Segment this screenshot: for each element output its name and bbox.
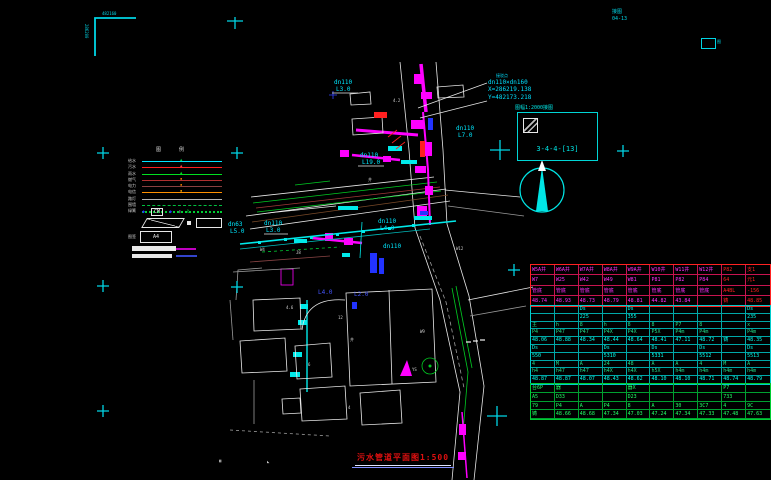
magenta-marker bbox=[400, 360, 412, 376]
table-cell: W49 bbox=[603, 275, 627, 285]
legend-item-label: 雨水 bbox=[128, 171, 136, 177]
table-cell: D23 bbox=[627, 393, 651, 402]
table-cell: Ds bbox=[627, 306, 651, 314]
table-cell bbox=[627, 345, 651, 353]
legend-symbol: ◆ bbox=[169, 209, 172, 215]
map-label: 12 bbox=[338, 316, 343, 320]
manhole-blob bbox=[459, 424, 466, 435]
sheet-index-box: 3-4-4-[13] bbox=[517, 112, 598, 161]
table-cell: P5X bbox=[650, 329, 674, 337]
table-cell: W7 bbox=[531, 275, 555, 285]
legend-item-marker: ▪ bbox=[180, 188, 182, 193]
table-cell: Ds bbox=[650, 345, 674, 353]
legend-item-label: 污水 bbox=[128, 164, 136, 170]
table-cell bbox=[722, 322, 746, 330]
table-cell: Ds bbox=[531, 345, 555, 353]
parallelogram-symbol bbox=[141, 218, 185, 228]
map-label: L7.0 bbox=[458, 133, 472, 139]
table-cell bbox=[698, 306, 722, 314]
hydrant bbox=[293, 352, 302, 357]
blue-block bbox=[428, 118, 433, 130]
table-cell bbox=[722, 314, 746, 322]
map-label: 4.2 bbox=[393, 99, 400, 103]
blue-block bbox=[420, 211, 428, 215]
table-cell: 79 bbox=[531, 402, 555, 411]
map-label: ▦ bbox=[219, 459, 221, 463]
table-cell: h bbox=[555, 322, 579, 330]
table-cell: 8 bbox=[579, 322, 603, 330]
table-cell: 器X bbox=[627, 384, 651, 393]
north-arrow-tip bbox=[538, 160, 546, 171]
table-cell: Ds bbox=[746, 306, 770, 314]
table-cell: Ds bbox=[698, 345, 722, 353]
table-cell bbox=[722, 306, 746, 314]
table-cell: h47 bbox=[555, 368, 579, 376]
table-cell bbox=[579, 353, 603, 361]
table-cell: 225 bbox=[579, 314, 603, 322]
table-cell: h4m bbox=[722, 368, 746, 376]
legend-symbol: ◆ bbox=[142, 209, 145, 215]
table-cell bbox=[603, 384, 627, 393]
manhole-blob bbox=[414, 74, 423, 84]
table-cell bbox=[603, 306, 627, 314]
table-cell: W12井 bbox=[698, 265, 722, 275]
frame-corner-bracket bbox=[95, 18, 136, 56]
building-divider bbox=[389, 290, 392, 384]
legend-item-marker: ▲ bbox=[180, 157, 182, 162]
sewer-pipe bbox=[421, 64, 426, 112]
table-cell bbox=[698, 384, 722, 393]
map-label: YS bbox=[412, 368, 417, 372]
table-cell: W5A井 bbox=[531, 265, 555, 275]
table-cell: 48.66 bbox=[555, 410, 579, 419]
table-cell: 5513 bbox=[746, 353, 770, 361]
table-section: 台6P器器XP7A5D33D2373379P4AP48A303C749C铸48.… bbox=[530, 383, 771, 420]
callout-pipe: dn110×dn160 bbox=[488, 80, 531, 86]
map-label: 4.6 bbox=[286, 306, 293, 310]
label-box bbox=[350, 92, 371, 105]
frame-coord-x: 482160 bbox=[102, 12, 116, 16]
table-cell: 47.34 bbox=[674, 410, 698, 419]
hedge-line bbox=[262, 247, 340, 252]
table-cell: A5 bbox=[531, 393, 555, 402]
table-cell: P7 bbox=[722, 384, 746, 393]
table-cell: M bbox=[555, 361, 579, 369]
table-cell: 48.41 bbox=[650, 337, 674, 345]
table-cell: 47.33 bbox=[698, 410, 722, 419]
parcel-line bbox=[448, 206, 524, 216]
table-cell: 8 bbox=[698, 322, 722, 330]
table-cell bbox=[674, 353, 698, 361]
manhole-blob bbox=[425, 186, 433, 195]
table-cell: 48.34 bbox=[579, 337, 603, 345]
valve bbox=[412, 224, 415, 227]
map-label: L19.0 bbox=[362, 160, 380, 166]
cad-drawing-canvas[interactable]: 482160 286200 接图 04-13 图 图例 给水▲污水▲雨水▲燃气▪… bbox=[0, 0, 771, 480]
table-cell: 47.24 bbox=[650, 410, 674, 419]
table-cell: A bbox=[674, 361, 698, 369]
blue-block bbox=[370, 253, 377, 273]
table-cell: 48 bbox=[627, 361, 651, 369]
tree-symbol-dot bbox=[429, 365, 432, 368]
table-cell bbox=[650, 393, 674, 402]
table-cell bbox=[650, 384, 674, 393]
table-cell bbox=[603, 314, 627, 322]
map-label: 6 bbox=[308, 363, 310, 367]
table-cell bbox=[555, 353, 579, 361]
table-cell: h4X bbox=[603, 368, 627, 376]
table-cell: 48.44 bbox=[603, 337, 627, 345]
table-cell: 3C7 bbox=[698, 402, 722, 411]
map-label: 4 bbox=[348, 406, 350, 410]
magenta-outline bbox=[281, 269, 293, 285]
table-cell: 8 bbox=[627, 322, 651, 330]
callout-y-coord: Y=482173.218 bbox=[488, 95, 531, 101]
table-cell: 主 bbox=[531, 322, 555, 330]
table-cell: 器 bbox=[555, 384, 579, 393]
table-cell: P84 bbox=[698, 275, 722, 285]
table-cell: P7 bbox=[674, 322, 698, 330]
legend-symbol-row: ◆CM◆▮Ł bbox=[142, 208, 190, 216]
table-cell: 9C bbox=[746, 402, 770, 411]
callout-caption: 接驳点 bbox=[496, 74, 531, 78]
table-cell: 48.72 bbox=[698, 337, 722, 345]
table-cell: h4m bbox=[674, 368, 698, 376]
table-cell: h4m bbox=[698, 368, 722, 376]
parcel-line bbox=[233, 268, 300, 272]
table-cell: W8A井 bbox=[603, 265, 627, 275]
legend-shape-row bbox=[144, 218, 222, 228]
parcel-line bbox=[230, 300, 233, 340]
table-cell bbox=[722, 345, 746, 353]
map-label: L2.0 bbox=[354, 292, 368, 298]
title-underline-1 bbox=[355, 465, 451, 466]
table-cell: 48.64 bbox=[627, 337, 651, 345]
table-cell bbox=[746, 393, 770, 402]
map-label: J8 bbox=[296, 251, 301, 255]
rectangle-symbol bbox=[196, 218, 222, 228]
parcel-line bbox=[468, 287, 533, 300]
table-cell bbox=[650, 314, 674, 322]
parcel-line bbox=[236, 268, 262, 300]
cyan-bar bbox=[401, 160, 417, 164]
table-cell bbox=[650, 306, 674, 314]
legend-item-label: 燃气 bbox=[128, 177, 136, 183]
table-cell bbox=[579, 384, 603, 393]
map-label: L3.0 bbox=[336, 87, 350, 93]
legend-symbol: ▮ bbox=[178, 209, 181, 215]
utility-line bbox=[295, 181, 330, 185]
table-cell bbox=[674, 306, 698, 314]
table-cell: 4 bbox=[698, 361, 722, 369]
table-cell: P82 bbox=[674, 275, 698, 285]
table-cell: 管底 bbox=[555, 286, 579, 296]
legend-item-label: 电信 bbox=[128, 189, 136, 195]
table-cell: 550 bbox=[531, 353, 555, 361]
road-edge bbox=[447, 224, 484, 480]
table-cell: Ds bbox=[603, 345, 627, 353]
table-cell: P82 bbox=[722, 265, 746, 275]
legend-item-marker: ▪ bbox=[180, 182, 182, 187]
table-cell: W11井 bbox=[674, 265, 698, 275]
table-cell: 355 bbox=[627, 314, 651, 322]
cyan-bar bbox=[388, 146, 402, 151]
table-cell: P81 bbox=[650, 275, 674, 285]
table-cell: W10井 bbox=[650, 265, 674, 275]
table-cell: 铸 bbox=[531, 410, 555, 419]
table-cell: 47.63 bbox=[746, 410, 770, 419]
table-cell: 733 bbox=[722, 393, 746, 402]
table-cell: P4 bbox=[531, 329, 555, 337]
legend-a4-row: 图签 A4 bbox=[128, 231, 172, 243]
table-cell: 管底 bbox=[603, 286, 627, 296]
drawing-title: 污水管道平面图1:500 bbox=[338, 445, 468, 468]
valve bbox=[284, 238, 287, 241]
map-label: L4.0 bbox=[318, 290, 332, 296]
parcel-line bbox=[445, 190, 520, 197]
title-underline-2 bbox=[352, 467, 454, 468]
table-cell bbox=[674, 393, 698, 402]
table-cell: A bbox=[579, 361, 603, 369]
table-cell: 4 bbox=[722, 402, 746, 411]
table-cell bbox=[722, 329, 746, 337]
mini-index-label: 图 bbox=[717, 40, 721, 44]
table-cell: 支1 bbox=[746, 265, 770, 275]
sheet-label-1: 接图 bbox=[612, 10, 622, 15]
table-cell: 4 bbox=[531, 361, 555, 369]
table-cell bbox=[698, 393, 722, 402]
table-cell: A bbox=[746, 361, 770, 369]
table-cell: W25 bbox=[555, 275, 579, 285]
table-cell: 台6P bbox=[531, 384, 555, 393]
manhole-blob bbox=[383, 156, 391, 162]
manhole-blob bbox=[415, 166, 426, 173]
red-block bbox=[374, 112, 387, 118]
manhole-blob bbox=[344, 238, 353, 245]
table-cell: 48.68 bbox=[579, 410, 603, 419]
frame-size-label: 图签 bbox=[128, 234, 136, 240]
parcel-line bbox=[470, 306, 526, 316]
drawing-title-text: 污水管道平面图1:500 bbox=[357, 453, 449, 462]
manhole-blob bbox=[424, 142, 432, 156]
map-label: W4 bbox=[260, 248, 265, 252]
frame-coord-y: 286200 bbox=[84, 24, 88, 38]
legend-bar bbox=[132, 254, 172, 258]
utility-line bbox=[250, 256, 330, 262]
map-label: L5.0 bbox=[230, 229, 244, 235]
mini-index-box bbox=[701, 38, 716, 49]
table-cell bbox=[674, 384, 698, 393]
table-cell: W7A井 bbox=[579, 265, 603, 275]
table-cell: A4BL bbox=[722, 286, 746, 296]
table-cell: P4m bbox=[746, 329, 770, 337]
table-cell: 64 bbox=[722, 275, 746, 285]
table-cell bbox=[555, 306, 579, 314]
hydrant bbox=[342, 253, 350, 257]
road-edge bbox=[400, 62, 415, 228]
table-cell: -156 bbox=[746, 286, 770, 296]
table-cell: P4 bbox=[555, 402, 579, 411]
table-cell: 8 bbox=[650, 322, 674, 330]
building-outline bbox=[346, 289, 436, 386]
table-cell bbox=[531, 314, 555, 322]
table-cell: h4 bbox=[531, 368, 555, 376]
table-cell: 30 bbox=[674, 402, 698, 411]
table-cell bbox=[579, 345, 603, 353]
legend-bar bbox=[132, 246, 176, 251]
north-arrow bbox=[536, 167, 548, 211]
valve bbox=[310, 236, 313, 239]
table-cell bbox=[722, 353, 746, 361]
utility-line bbox=[253, 182, 437, 203]
table-cell: A bbox=[650, 402, 674, 411]
legend-item-label: 路灯 bbox=[128, 196, 136, 202]
table-cell bbox=[555, 345, 579, 353]
legend-header: 图例 bbox=[156, 146, 202, 153]
map-label: dn110 bbox=[383, 244, 401, 250]
table-cell: P4m bbox=[674, 329, 698, 337]
legend-item-line bbox=[142, 199, 222, 200]
table-cell: P4m bbox=[698, 329, 722, 337]
map-label: L3.0 bbox=[266, 228, 280, 234]
table-cell: h4m bbox=[746, 368, 770, 376]
table-cell: Ds bbox=[579, 306, 603, 314]
square-symbol bbox=[187, 221, 191, 225]
table-cell: 235 bbox=[746, 314, 770, 322]
utility-line bbox=[452, 288, 468, 432]
hydrant bbox=[300, 304, 308, 309]
map-label: L4.0 bbox=[380, 226, 394, 232]
cyan-bar bbox=[338, 206, 358, 210]
map-label: 井 bbox=[368, 178, 372, 182]
table-cell: 5331 bbox=[650, 353, 674, 361]
table-cell: 铸 bbox=[722, 337, 746, 345]
manhole-blob bbox=[411, 120, 424, 129]
building-outline bbox=[282, 398, 301, 414]
legend-item-marker: ▪ bbox=[180, 176, 182, 181]
table-cell: Ds bbox=[746, 345, 770, 353]
table-cell: 47.34 bbox=[603, 410, 627, 419]
table-cell: P4 bbox=[603, 402, 627, 411]
building-outline bbox=[240, 338, 287, 373]
legend-symbol: CM bbox=[151, 208, 163, 216]
sheet-label-2: 04-13 bbox=[612, 17, 627, 22]
table-cell: 48.06 bbox=[531, 337, 555, 345]
table-cell bbox=[579, 393, 603, 402]
red-block bbox=[420, 141, 425, 157]
manhole-blob bbox=[340, 150, 349, 157]
blue-block bbox=[379, 258, 384, 274]
building-outline bbox=[360, 390, 402, 425]
map-label: 井 bbox=[350, 338, 354, 342]
table-cell: W6A井 bbox=[555, 265, 579, 275]
table-cell bbox=[603, 393, 627, 402]
valve bbox=[362, 230, 365, 233]
table-cell: 管底 bbox=[650, 286, 674, 296]
table-cell bbox=[627, 353, 651, 361]
table-cell bbox=[674, 314, 698, 322]
a4-frame-box: A4 bbox=[140, 231, 172, 243]
legend-symbol: Ł bbox=[187, 209, 190, 215]
legend-line-list: 给水▲污水▲雨水▲燃气▪电力▪电信▪路灯围墙绿篱 bbox=[128, 158, 224, 215]
table-cell bbox=[698, 314, 722, 322]
table-cell: W9A井 bbox=[627, 265, 651, 275]
building-outline bbox=[295, 343, 332, 379]
table-cell: h bbox=[603, 322, 627, 330]
table-cell: 24 bbox=[603, 361, 627, 369]
table-cell: D33 bbox=[555, 393, 579, 402]
table-cell: h47 bbox=[579, 368, 603, 376]
sheet-index-caption: 图幅1:2000接图 bbox=[515, 104, 553, 111]
table-cell: 47.48 bbox=[722, 410, 746, 419]
table-cell: 管底 bbox=[531, 286, 555, 296]
table-cell: 管底 bbox=[627, 286, 651, 296]
table-cell: M bbox=[722, 361, 746, 369]
table-cell: x bbox=[746, 322, 770, 330]
table-cell: P47 bbox=[555, 329, 579, 337]
table-cell: 管底 bbox=[579, 286, 603, 296]
legend-blue-line bbox=[176, 255, 197, 257]
table-cell bbox=[674, 345, 698, 353]
table-cell: A bbox=[650, 361, 674, 369]
table-section: DsDsDs225355235主h8h88P78xP4P47P47P4XP4XP… bbox=[530, 305, 771, 385]
blue-block bbox=[352, 302, 357, 309]
table-cell: 47.11 bbox=[674, 337, 698, 345]
hatched-square-icon bbox=[523, 118, 538, 133]
table-cell: P47 bbox=[579, 329, 603, 337]
table-cell: 元1 bbox=[746, 275, 770, 285]
parcel-line bbox=[230, 430, 330, 436]
table-cell: 管底 bbox=[674, 286, 698, 296]
legend-item-marker: ▲ bbox=[180, 163, 182, 168]
legend-item-marker: ▲ bbox=[180, 170, 182, 175]
callout-x-coord: X=286219.138 bbox=[488, 87, 531, 93]
table-cell: 48.88 bbox=[555, 337, 579, 345]
table-cell: W42 bbox=[579, 275, 603, 285]
table-cell: 5310 bbox=[603, 353, 627, 361]
table-cell: W81 bbox=[627, 275, 651, 285]
legend-item-label: 绿篱 bbox=[128, 208, 136, 214]
cyan-bar bbox=[294, 239, 307, 243]
hydrant bbox=[290, 372, 300, 377]
building-outline bbox=[253, 298, 301, 331]
sheet-index-number: 3-4-4-[13] bbox=[518, 145, 597, 153]
table-cell: 48.35 bbox=[746, 337, 770, 345]
table-cell: P4X bbox=[603, 329, 627, 337]
legend-magenta-line bbox=[176, 248, 196, 250]
cyan-bar bbox=[414, 216, 432, 220]
map-label: W9 bbox=[420, 330, 425, 334]
elevation-table: W5A井W6A井W7A井W8A井W9A井W10井W11井W12井P82支1W7W… bbox=[530, 264, 771, 418]
legend-item-line bbox=[142, 205, 222, 206]
valve bbox=[336, 233, 339, 236]
water-pipe bbox=[360, 222, 362, 258]
white-dashes bbox=[466, 340, 485, 342]
manhole-blob bbox=[421, 92, 432, 99]
table-cell: 管底 bbox=[698, 286, 722, 296]
hydrant bbox=[298, 320, 307, 325]
table-cell: 8 bbox=[627, 402, 651, 411]
table-cell: P4X bbox=[627, 329, 651, 337]
table-cell bbox=[555, 314, 579, 322]
table-cell: h4X bbox=[627, 368, 651, 376]
map-label: ◣ bbox=[267, 460, 269, 464]
coordinate-callout: 接驳点 dn110×dn160 X=286219.138 Y=482173.21… bbox=[488, 74, 531, 101]
valve bbox=[258, 241, 261, 244]
table-cell bbox=[746, 384, 770, 393]
map-label: W12 bbox=[456, 247, 463, 251]
table-cell: h5X bbox=[650, 368, 674, 376]
